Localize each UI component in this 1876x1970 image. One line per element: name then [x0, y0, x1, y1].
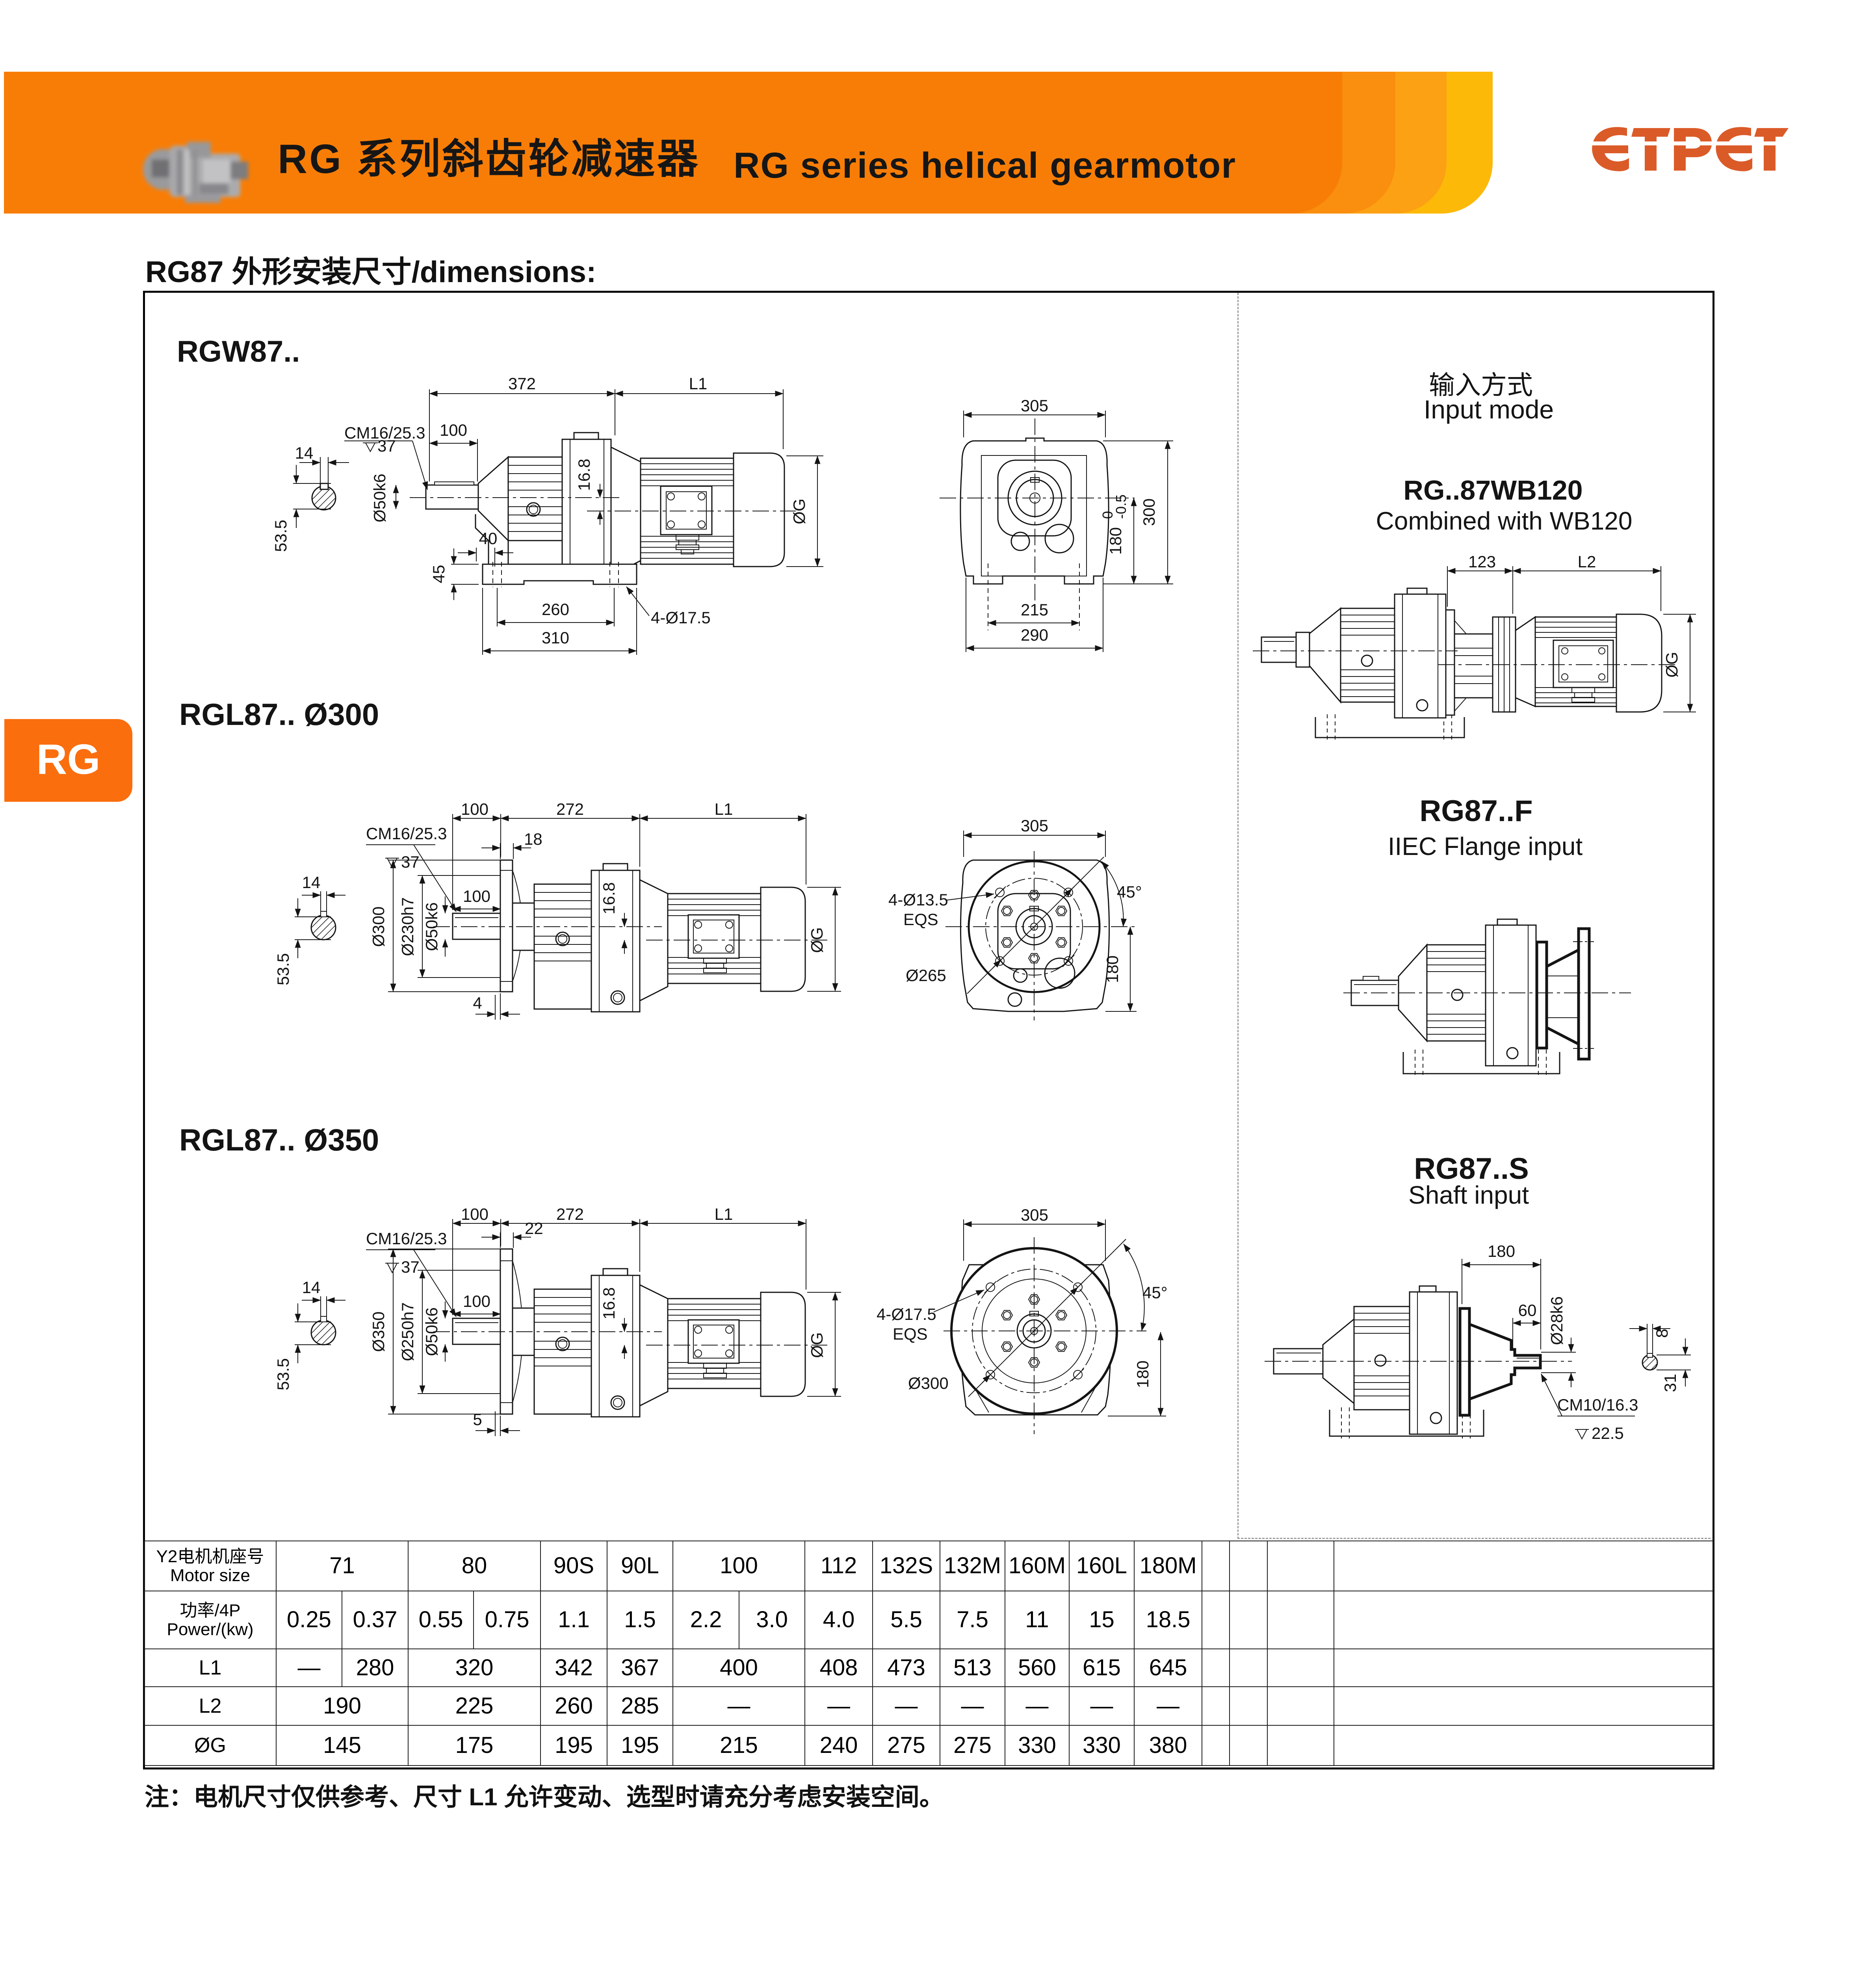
svg-text:22: 22 — [525, 1219, 543, 1238]
svg-text:Ø28k6: Ø28k6 — [1547, 1296, 1566, 1345]
svg-text:RGW87..: RGW87.. — [177, 335, 300, 368]
svg-text:4: 4 — [473, 994, 482, 1012]
svg-text:L1: L1 — [689, 374, 708, 393]
svg-text:180: 180 — [1106, 527, 1125, 555]
svg-text:CM16/25.3: CM16/25.3 — [366, 1229, 447, 1248]
svg-text:123: 123 — [1468, 552, 1496, 571]
svg-text:16.8: 16.8 — [600, 882, 618, 914]
svg-text:305: 305 — [1021, 396, 1048, 415]
svg-text:16.8: 16.8 — [600, 1287, 618, 1320]
svg-text:305: 305 — [1021, 1206, 1048, 1224]
svg-text:RGL87.. Ø350: RGL87.. Ø350 — [179, 1123, 379, 1157]
svg-text:L1: L1 — [715, 800, 733, 818]
svg-text:RGL87.. Ø300: RGL87.. Ø300 — [179, 697, 379, 732]
svg-text:8: 8 — [1653, 1329, 1671, 1338]
svg-text:40: 40 — [479, 529, 498, 548]
svg-text:31: 31 — [1661, 1374, 1679, 1392]
svg-text:215: 215 — [1021, 600, 1048, 619]
svg-text:EQS: EQS — [903, 910, 938, 929]
svg-text:Shaft input: Shaft input — [1408, 1181, 1529, 1209]
svg-text:45: 45 — [429, 565, 448, 584]
svg-text:Input mode: Input mode — [1424, 395, 1554, 424]
svg-text:300: 300 — [1140, 498, 1158, 526]
svg-text:16.8: 16.8 — [575, 459, 593, 491]
svg-text:45°: 45° — [1142, 1283, 1168, 1302]
svg-text:53.5: 53.5 — [274, 953, 292, 985]
svg-text:45°: 45° — [1117, 883, 1142, 901]
svg-text:14: 14 — [302, 873, 321, 892]
svg-text:310: 310 — [542, 628, 569, 647]
svg-text:L2: L2 — [1578, 552, 1596, 571]
svg-text:14: 14 — [295, 444, 314, 462]
svg-text:272: 272 — [556, 800, 584, 818]
svg-text:180: 180 — [1103, 955, 1122, 983]
svg-text:EQS: EQS — [893, 1325, 928, 1343]
svg-text:Ø50k6: Ø50k6 — [370, 474, 389, 522]
svg-text:14: 14 — [302, 1278, 321, 1297]
svg-text:100: 100 — [463, 887, 490, 905]
svg-text:37: 37 — [401, 853, 420, 871]
svg-text:53.5: 53.5 — [271, 520, 290, 552]
svg-text:4-Ø17.5: 4-Ø17.5 — [651, 608, 711, 627]
svg-text:290: 290 — [1021, 626, 1048, 644]
svg-text:100: 100 — [463, 1292, 490, 1310]
svg-text:100: 100 — [461, 800, 489, 818]
svg-text:305: 305 — [1021, 816, 1048, 835]
svg-text:Combined with WB120: Combined with WB120 — [1376, 507, 1633, 535]
svg-text:60: 60 — [1518, 1301, 1537, 1320]
svg-text:4-Ø13.5: 4-Ø13.5 — [888, 890, 948, 909]
svg-text:53.5: 53.5 — [274, 1358, 292, 1390]
svg-text:Ø350: Ø350 — [369, 1312, 388, 1352]
svg-text:100: 100 — [440, 421, 467, 439]
svg-text:L1: L1 — [715, 1205, 733, 1223]
svg-text:Ø265: Ø265 — [906, 966, 946, 985]
svg-text:-0.5: -0.5 — [1113, 494, 1129, 519]
svg-text:Ø230h7: Ø230h7 — [398, 897, 417, 956]
svg-text:RG..87WB120: RG..87WB120 — [1403, 475, 1583, 506]
svg-text:CM10/16.3: CM10/16.3 — [1557, 1396, 1638, 1414]
svg-text:100: 100 — [461, 1205, 489, 1223]
svg-text:37: 37 — [377, 437, 396, 455]
svg-text:22.5: 22.5 — [1592, 1424, 1624, 1442]
svg-text:372: 372 — [508, 374, 536, 393]
svg-text:18: 18 — [524, 830, 542, 848]
svg-text:Ø300: Ø300 — [369, 907, 388, 947]
svg-text:RG87..F: RG87..F — [1419, 794, 1532, 828]
svg-text:180: 180 — [1488, 1242, 1515, 1260]
svg-text:5: 5 — [473, 1410, 482, 1429]
svg-text:180: 180 — [1133, 1360, 1152, 1388]
svg-text:272: 272 — [556, 1205, 584, 1223]
svg-text:IIEC Flange input: IIEC Flange input — [1388, 832, 1583, 860]
svg-text:Ø300: Ø300 — [908, 1374, 949, 1392]
svg-text:260: 260 — [542, 600, 569, 619]
svg-text:Ø250h7: Ø250h7 — [398, 1302, 417, 1361]
svg-text:CM16/25.3: CM16/25.3 — [366, 824, 447, 843]
svg-text:4-Ø17.5: 4-Ø17.5 — [877, 1305, 936, 1323]
svg-text:37: 37 — [401, 1258, 420, 1276]
